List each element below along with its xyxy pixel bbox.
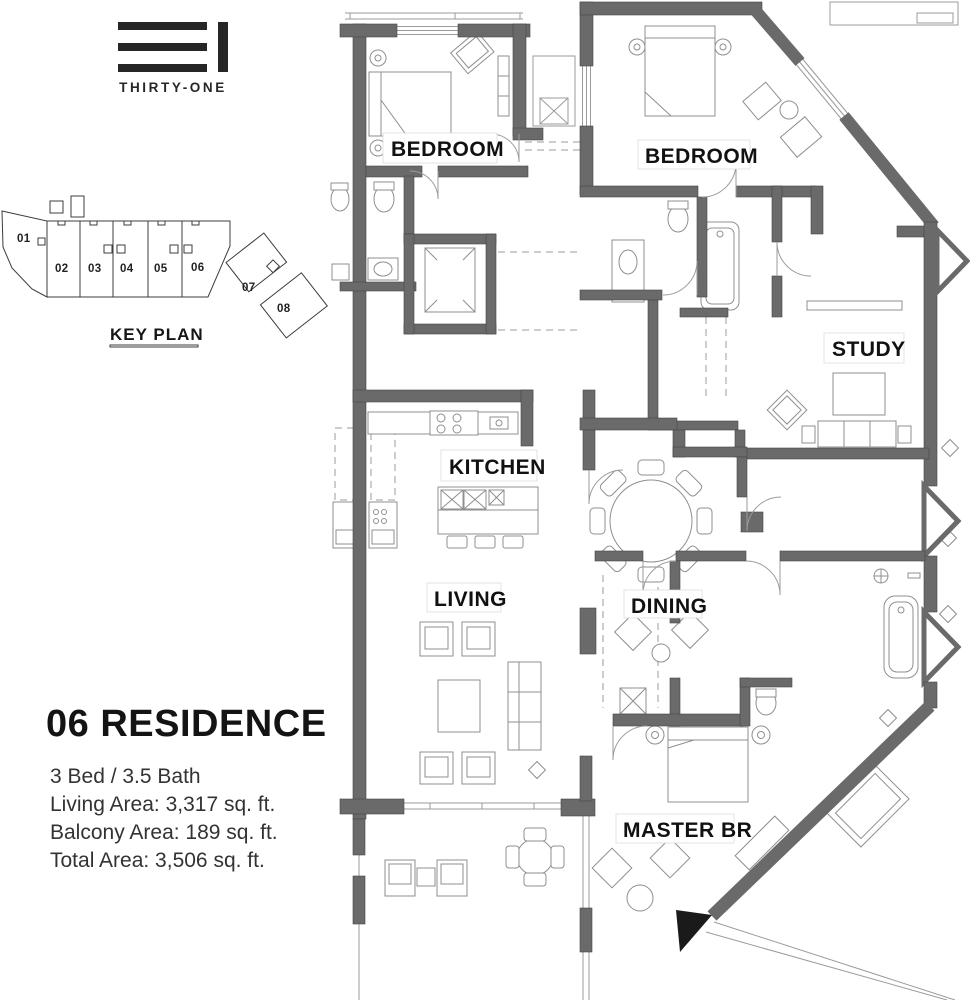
media-console — [580, 608, 596, 654]
bay-window-icon — [924, 486, 958, 556]
dining-table-icon — [590, 460, 712, 582]
room-label-study: STUDY — [832, 338, 906, 361]
bed-icon — [369, 72, 451, 136]
study-furniture — [767, 301, 911, 447]
key-plan-unit-07: 07 — [242, 282, 255, 294]
room-label-living: LIVING — [434, 588, 507, 611]
elevator-icon — [425, 248, 475, 332]
key-plan-unit-05: 05 — [154, 263, 168, 275]
bed-icon — [645, 26, 715, 116]
living-furniture — [420, 622, 545, 784]
key-plan-unit-08: 08 — [277, 303, 291, 315]
balcony-furniture — [385, 828, 564, 896]
door-swings-layer — [410, 134, 811, 760]
key-plan-unit-01: 01 — [17, 233, 31, 245]
entry-door-icon — [676, 910, 712, 952]
key-plan-underline — [110, 345, 198, 347]
room-label-kitchen: KITCHEN — [449, 456, 546, 479]
floorplan-sheet: THIRTY-ONE 06 RESIDENCE 3 Bed / 3.5 Bath… — [0, 0, 970, 1000]
key-plan: 01 02 03 04 05 06 07 08 KEY PLAN — [2, 196, 327, 347]
terrace-railing — [714, 922, 955, 1000]
room-label-master-br: MASTER BR — [623, 819, 752, 842]
stair-core-icon — [50, 201, 63, 213]
room-label-dining: DINING — [631, 595, 708, 618]
key-plan-unit-06: 06 — [191, 262, 204, 274]
bed-icon — [668, 727, 748, 802]
floor-plan-drawing: 01 02 03 04 05 06 07 08 KEY PLAN — [0, 0, 970, 1000]
bay-window-icon — [937, 230, 967, 292]
key-plan-unit-02: 02 — [55, 263, 68, 275]
room-label-bedroom-2: BEDROOM — [645, 145, 758, 168]
room-label-bedroom-1: BEDROOM — [391, 138, 504, 161]
key-plan-unit-01-outline — [2, 211, 47, 297]
kitchen-island — [438, 487, 538, 548]
elevator-core-icon — [71, 196, 84, 217]
bay-window-icon — [924, 612, 958, 682]
key-plan-unit-04: 04 — [120, 263, 134, 275]
toilet-icon — [668, 206, 688, 232]
key-plan-title: KEY PLAN — [110, 325, 204, 344]
key-plan-unit-03: 03 — [88, 263, 101, 275]
